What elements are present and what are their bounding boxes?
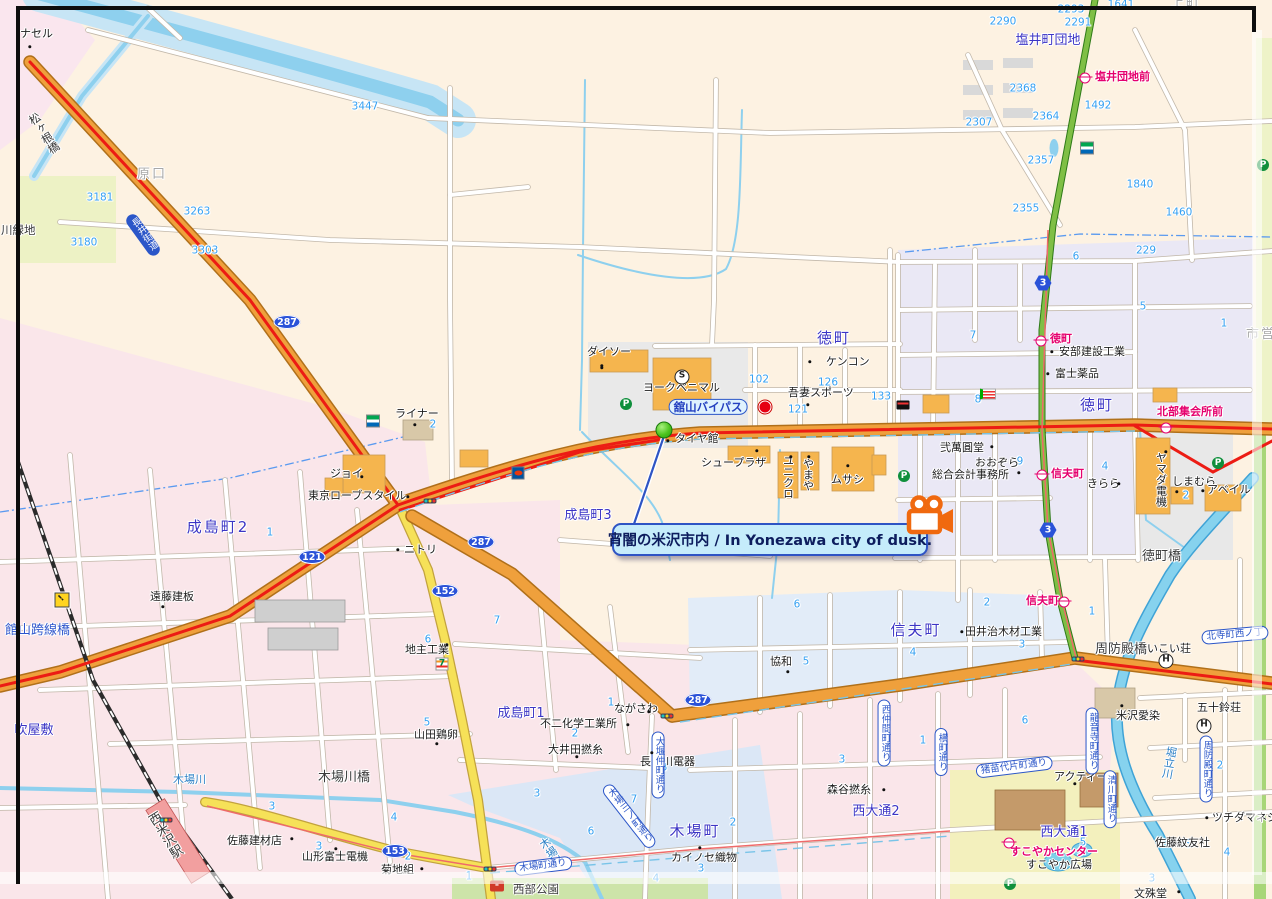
scircle-icon: S (675, 370, 690, 385)
route-shield: 287 (468, 535, 495, 549)
poi-dot (1177, 890, 1180, 893)
poi-dot (1205, 816, 1208, 819)
map-label: 菊地組 (381, 864, 414, 876)
parking-icon: P (1257, 159, 1269, 171)
map-label: 西米沢駅 (144, 810, 183, 861)
road-name-banner: 北寺町西ノ丁 (1201, 625, 1269, 645)
map-label: 2355 (1013, 203, 1040, 214)
map-label: すこやかセンター (1010, 846, 1098, 858)
map-label: 2293 (1058, 4, 1085, 15)
map-label: 4 (1224, 847, 1231, 858)
map-label: 6 (588, 826, 595, 837)
poi-dot (1117, 482, 1120, 485)
route-shield: 287 (685, 693, 712, 707)
map-label: 7 (631, 794, 638, 805)
bus-icon (1036, 336, 1047, 347)
cheri-icon: ≡ (490, 881, 504, 892)
poi-dot (755, 449, 758, 452)
map-label: 徳町 (817, 331, 851, 347)
map-label: 5 (1185, 839, 1192, 850)
map-label: 総合会計事務所 (932, 469, 1009, 481)
labels-layer: 塩井町団地徳町徳町成島町2成島町3成島町1信夫町木場町西大通2西大通1吹屋敷原口… (0, 0, 1272, 899)
map-label: いこい荘 (1147, 643, 1191, 655)
map-label: 徳町 (1080, 398, 1114, 414)
map-label: 館山跨線橋 (5, 624, 70, 638)
route-shield: 3 (1035, 276, 1052, 291)
map-label: 3 (698, 863, 705, 874)
poi-dot (960, 630, 963, 633)
map-label: ムサシ (831, 474, 864, 486)
map-label: ケンコン (826, 356, 870, 368)
map-viewport[interactable]: { "callout": {"text": "宵闇の米沢市内 / In Yone… (0, 0, 1272, 899)
bus-icon (1037, 470, 1048, 481)
map-label: 3 (534, 788, 541, 799)
map-label: 佐藤建材店 (227, 835, 282, 847)
map-label: 2 (1217, 760, 1224, 771)
map-label: 吹屋敷 (14, 724, 53, 738)
map-label: 4 (653, 873, 660, 884)
map-label: 2368 (1010, 83, 1037, 94)
map-label: 1 (920, 735, 927, 746)
poi-dot (445, 643, 448, 646)
poi-dot (1201, 489, 1204, 492)
map-label: 周防殿橋 (1095, 643, 1147, 657)
poi-dot (807, 455, 810, 458)
poi-dot (990, 445, 993, 448)
map-label: やまや (802, 458, 814, 491)
map-label: ダイソー (587, 346, 631, 358)
map-label: 2 (984, 597, 991, 608)
poi-dot (28, 45, 31, 48)
light-icon (160, 818, 173, 823)
map-label: 徳町 (1050, 333, 1072, 345)
bus-icon (1004, 838, 1015, 849)
road-name-banner: 木場三ノ町通り (600, 782, 657, 850)
road-name-banner: 大堰仲町通り (652, 732, 665, 799)
map-label: 東京ローブスタイル (308, 490, 406, 502)
poi-dot (626, 723, 629, 726)
parking-icon: P (1004, 878, 1016, 890)
map-label: 原口 (137, 168, 167, 182)
poi-dot (161, 605, 164, 608)
map-label: 7 (494, 615, 501, 626)
poi-dot (600, 364, 603, 367)
map-label: 121 (788, 404, 808, 415)
map-label: 木場川 (537, 836, 565, 870)
light-icon (484, 867, 497, 872)
map-label: 3 (1019, 639, 1026, 650)
light-icon (1072, 657, 1085, 662)
map-label: 五十鈴荘 (1197, 702, 1241, 714)
hcircle-icon: H (1159, 654, 1174, 669)
family-icon (366, 415, 380, 428)
map-label: 2357 (1028, 155, 1055, 166)
bus-icon (1161, 423, 1172, 434)
map-label: 2290 (990, 16, 1017, 27)
poi-dot (420, 867, 423, 870)
map-label: 堀立川 (1160, 745, 1177, 780)
poi-dot (666, 439, 669, 442)
hcircle-icon: H (1197, 719, 1212, 734)
road-name-banner: 周防殿町通り (1200, 736, 1213, 803)
road-name-banner: 舘山バイパス (669, 399, 748, 415)
map-label: 3447 (352, 101, 379, 112)
map-label: 協和 (770, 656, 792, 668)
map-label: 山形富士電機 (302, 851, 368, 863)
map-label: 米沢愛染 (1116, 710, 1160, 722)
map-label: ユニクロ (782, 455, 794, 499)
map-label: 富士薬品 (1055, 368, 1099, 380)
map-label: 2 (572, 728, 579, 739)
map-label: 5 (803, 656, 810, 667)
map-label: 3303 (192, 245, 219, 256)
map-label: ライナー (395, 408, 439, 420)
map-label: 成島町3 (564, 509, 611, 523)
map-label: 2 (730, 817, 737, 828)
poi-dot (396, 548, 399, 551)
route-shield: 287 (274, 315, 301, 329)
map-label: 6 (1073, 251, 1080, 262)
road-name-banner: 猪苗代片町通り (975, 755, 1053, 778)
poi-dot (806, 403, 809, 406)
map-label: シュープラザ (701, 457, 766, 469)
photo-callout[interactable]: 宵闇の米沢市内 / In Yonezawa city of dusk. (612, 523, 928, 556)
map-label: 5 (424, 717, 431, 728)
eneos-icon (512, 467, 525, 480)
blackstore-icon (897, 401, 910, 410)
map-label: 1 (466, 871, 473, 882)
map-label: 3 (269, 801, 276, 812)
map-label: 1 (608, 697, 615, 708)
map-label: 3181 (87, 192, 114, 203)
map-label: しまむら (1172, 476, 1216, 488)
map-label: 3 (316, 841, 323, 852)
light-icon (661, 714, 674, 719)
map-label: 1492 (1085, 100, 1112, 111)
map-label: 5 (1140, 301, 1147, 312)
map-label: 2307 (966, 117, 993, 128)
light-icon (424, 499, 437, 504)
map-label: 弐萬圓堂 (940, 442, 984, 454)
map-label: ながさわ (614, 703, 658, 715)
poi-dot (786, 670, 789, 673)
road-name-banner: 木場町通り (514, 856, 573, 877)
map-label: 木場町 (669, 824, 720, 840)
map-label: 8 (661, 762, 668, 773)
map-label: 西部公園 (513, 883, 559, 895)
map-label: アベイル (1207, 484, 1251, 496)
map-label: 地主工業 (405, 644, 449, 656)
route-shield: 153 (382, 844, 409, 858)
map-label: 森谷撚糸 (827, 784, 871, 796)
map-label: 2 (430, 419, 437, 430)
map-label: 3180 (71, 237, 98, 248)
poi-dot (1073, 782, 1076, 785)
poi-dot (808, 360, 811, 363)
map-label: 田井治木材工業 (965, 626, 1042, 638)
poi-dot (789, 455, 792, 458)
map-label: 吾妻スポーツ (788, 387, 854, 399)
map-label: 1460 (1166, 207, 1193, 218)
poi-dot (882, 788, 885, 791)
map-label: 山田鶏卵 (414, 729, 458, 741)
map-label: ツチダマネジ (1212, 812, 1272, 824)
map-label: ヨークベニマル (643, 382, 720, 394)
parking-icon: P (620, 398, 632, 410)
map-label: 3 (1149, 873, 1156, 884)
poi-dot (698, 846, 701, 849)
poi-dot (435, 742, 438, 745)
map-label: 成島町2 (187, 520, 250, 536)
map-label: 信夫町 (890, 623, 941, 639)
poi-dot (1050, 350, 1053, 353)
poi-dot (575, 755, 578, 758)
map-label: 5 (547, 853, 554, 864)
map-label: 8 (975, 394, 982, 405)
poi-dot (290, 837, 293, 840)
road-name-banner: 龍音寺町通り (1086, 708, 1099, 775)
map-label: 塩井町団地 (1015, 34, 1080, 48)
poi-dot (413, 423, 416, 426)
map-label: 西大通1 (1040, 826, 1087, 840)
map-label: タイヤ館 (675, 433, 719, 445)
map-label: 長谷川電器 (640, 756, 695, 768)
map-label: おおぞら (975, 457, 1019, 469)
route-shield: 152 (432, 584, 459, 598)
map-label: 1 (1221, 318, 1228, 329)
parking-icon: P (898, 470, 910, 482)
map-label: 3263 (184, 206, 211, 217)
redstore-icon (759, 401, 772, 414)
map-label: 市営 (1246, 328, 1272, 342)
map-label: 3 (839, 754, 846, 765)
map-label: 2 (405, 851, 412, 862)
map-label: 木場川 (173, 774, 206, 786)
map-label: 川緑地 (1, 224, 36, 236)
map-label: ヤマダ電機 (1155, 452, 1167, 507)
map-label: 4 (391, 812, 398, 823)
map-label: 安部建設工業 (1059, 346, 1125, 358)
map-label: 6 (425, 634, 432, 645)
poi-dot (647, 710, 650, 713)
bus-icon (1059, 597, 1070, 608)
map-label: 4 (910, 647, 917, 658)
poi-dot (1046, 372, 1049, 375)
map-label: 1641 (1108, 0, 1135, 11)
poi-dot (650, 751, 653, 754)
map-label: 文殊堂 (1134, 888, 1167, 899)
map-label: 5 (1080, 837, 1087, 848)
map-label: 126 (818, 377, 838, 388)
map-label: 1840 (1127, 179, 1154, 190)
map-label: きらら (1087, 478, 1120, 490)
poi-dot (406, 495, 409, 498)
map-label: 西大通2 (852, 805, 899, 819)
route-shield: 3 (1040, 523, 1057, 538)
road-name-banner: 横町通り (935, 728, 948, 776)
parking-icon: P (1212, 457, 1224, 469)
map-label: 遠藤建板 (150, 591, 194, 603)
map-label: 北部集会所前 (1157, 406, 1223, 418)
poi-dot (600, 366, 603, 369)
map-label: 133 (871, 391, 891, 402)
map-label: 松ヶ根橋 (26, 110, 61, 155)
map-label: 2364 (1033, 111, 1060, 122)
poi-dot (360, 475, 363, 478)
map-label: 不二化学工業所 (540, 718, 617, 730)
map-label: 6 (1022, 715, 1029, 726)
camera-icon[interactable] (905, 492, 957, 540)
crossing-icon (55, 593, 70, 608)
map-label: 信夫町 (1026, 595, 1059, 607)
map-label: ジョイ (330, 468, 363, 480)
road-name-banner: 西仲間町通り (878, 700, 891, 767)
road-name-banner: 清川町通り (1104, 770, 1117, 828)
marker-icon (656, 422, 673, 439)
poi-dot (1120, 704, 1123, 707)
poi-dot (846, 464, 849, 467)
map-label: 上町 (1171, 0, 1201, 11)
map-label: すこやか広場 (1026, 859, 1092, 871)
poi-dot (1164, 450, 1167, 453)
map-label: 229 (1136, 245, 1156, 256)
poi-dot (1017, 471, 1020, 474)
map-label: 徳町橋 (1142, 550, 1181, 564)
map-label: 木場川橋 (318, 771, 370, 785)
map-label: 佐藤紋友社 (1155, 837, 1210, 849)
road-name-banner: 長井街道 (124, 212, 163, 258)
map-label: 信夫町 (1051, 468, 1084, 480)
map-label: 6 (794, 599, 801, 610)
map-label: 1 (267, 527, 274, 538)
map-label: 塩井団地前 (1095, 71, 1150, 83)
map-label: 7 (970, 330, 977, 341)
map-label: アクティー (1054, 771, 1108, 783)
map-label: 102 (749, 374, 769, 385)
seven-icon: 7 (436, 658, 449, 671)
family-icon (1080, 142, 1094, 155)
map-label: ナセル (20, 28, 53, 40)
map-label: 1 (1089, 606, 1096, 617)
map-label: 9 (1017, 456, 1024, 467)
flag-icon (980, 389, 996, 400)
map-label: ニトリ (404, 544, 437, 556)
map-label: カイノセ織物 (671, 852, 737, 864)
bus-icon (1080, 73, 1091, 84)
map-label: 4 (1102, 461, 1109, 472)
map-label: 成島町1 (497, 707, 544, 721)
map-label: 2 (1183, 490, 1190, 501)
map-label: 2291 (1065, 17, 1092, 28)
map-label: 大井田撚糸 (548, 744, 603, 756)
route-shield: 121 (299, 550, 326, 564)
poi-dot (334, 847, 337, 850)
poi-dot (1175, 490, 1178, 493)
